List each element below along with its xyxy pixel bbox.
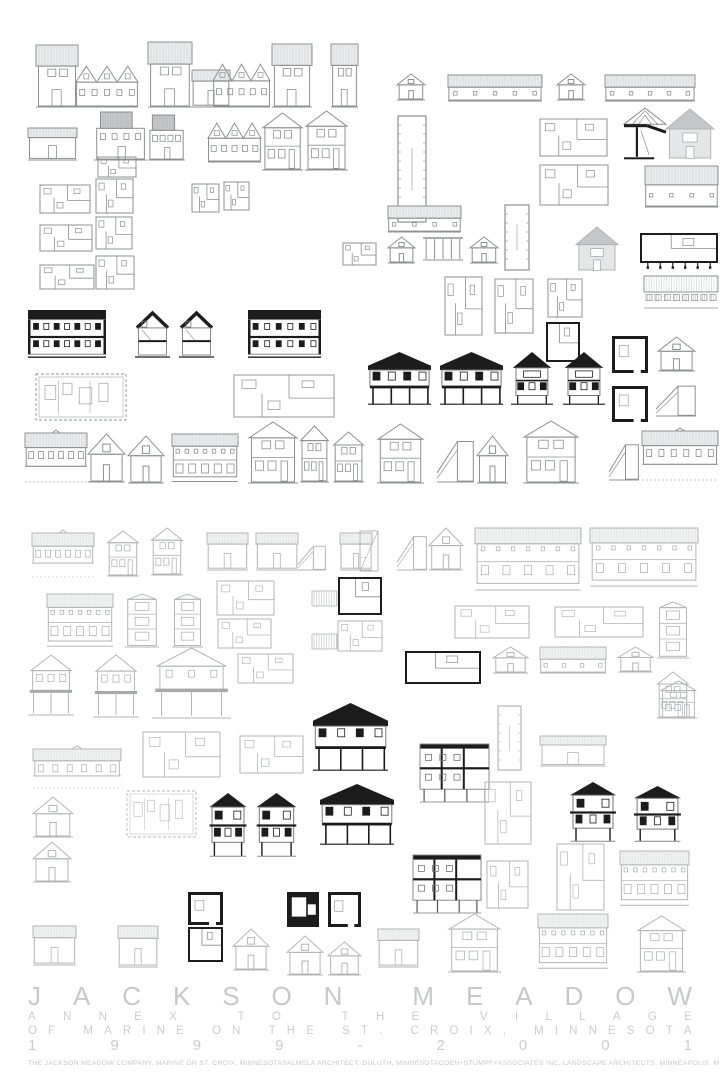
- elevation-drawing: [152, 648, 231, 718]
- elevation-drawing: [642, 428, 718, 480]
- elevation-drawing: [448, 914, 501, 972]
- floor-plan-drawing: [40, 225, 92, 251]
- elevation-drawing: [33, 746, 121, 788]
- section-drawing: [313, 703, 388, 771]
- elevation-drawing: [523, 421, 579, 483]
- floor-plan-drawing: [644, 276, 718, 308]
- elevation-drawing: [33, 926, 76, 965]
- floor-plan-drawing: [445, 277, 482, 335]
- elevation-drawing: [448, 74, 542, 101]
- elevation-drawing: [618, 647, 653, 672]
- poster-subtitle-line1: ANNEXTOTHEVILLAGE: [28, 1011, 692, 1023]
- jackson-meadow-poster: JACKSONMEADOW ANNEXTOTHEVILLAGE OFMARINE…: [0, 0, 720, 1080]
- section-drawing: [440, 352, 503, 405]
- elevation-drawing: [540, 736, 606, 766]
- floor-plan-drawing: [96, 217, 132, 249]
- floor-plan-drawing: [192, 184, 219, 212]
- elevation-drawing: [248, 422, 298, 483]
- floor-plan-drawing: [188, 927, 223, 962]
- elevation-drawing: [605, 74, 695, 101]
- elevation-drawing: [475, 526, 581, 592]
- elevation-drawing: [272, 44, 312, 107]
- elevation-drawing: [298, 543, 326, 570]
- floor-plan-drawing: [240, 736, 303, 773]
- elevation-drawing: [423, 236, 463, 261]
- elevation-drawing: [397, 532, 427, 570]
- elevation-drawing: [107, 531, 139, 576]
- floor-plan-drawing: [498, 706, 521, 770]
- elevation-drawing: [477, 436, 508, 483]
- elevation-drawing: [148, 115, 185, 160]
- floor-plan-drawing: [188, 892, 223, 925]
- elevation-drawing: [538, 912, 608, 970]
- section-drawing: [320, 784, 394, 845]
- elevation-drawing: [256, 533, 298, 570]
- section-drawing: [511, 352, 553, 405]
- elevation-drawing: [557, 74, 585, 100]
- elevation-drawing: [28, 128, 77, 160]
- section-drawing: [568, 782, 618, 842]
- elevation-drawing: [666, 109, 714, 159]
- elevation-drawing: [151, 528, 183, 575]
- section-drawing: [248, 310, 321, 358]
- floor-plan-drawing: [40, 265, 94, 289]
- elevation-drawing: [493, 647, 528, 673]
- elevation-drawing: [590, 526, 698, 588]
- poster-years: 1999-2001: [28, 1038, 692, 1054]
- floor-plan-drawing: [328, 892, 361, 927]
- elevation-drawing: [172, 594, 203, 647]
- floor-plan-drawing: [217, 581, 274, 615]
- elevation-drawing: [287, 936, 323, 975]
- floor-plan-drawing: [287, 892, 319, 927]
- section-drawing: [28, 310, 106, 358]
- floor-plan-drawing: [612, 386, 648, 422]
- section-drawing: [368, 352, 431, 405]
- floor-plan-drawing: [343, 243, 376, 265]
- elevation-drawing: [377, 424, 424, 483]
- elevation-drawing: [94, 112, 147, 160]
- hatch-mark: [312, 591, 337, 606]
- elevation-drawing: [620, 849, 689, 907]
- elevation-drawing: [36, 45, 78, 107]
- floor-plan-drawing: [487, 861, 528, 908]
- floor-plan-drawing: [505, 205, 529, 270]
- floor-plan-drawing: [218, 619, 271, 648]
- floor-plan-drawing: [640, 233, 718, 269]
- floor-plan-drawing: [455, 606, 529, 638]
- section-drawing: [255, 793, 298, 857]
- elevation-drawing: [609, 440, 639, 480]
- credit-landscape: COEN+STUMPF+ASSOCIATES INC, LANDSCAPE AR…: [439, 1060, 720, 1068]
- elevation-drawing: [470, 237, 498, 263]
- elevation-drawing: [360, 531, 378, 571]
- elevation-drawing: [429, 528, 463, 570]
- elevation-drawing: [128, 436, 164, 483]
- hatch-mark: [312, 634, 337, 649]
- section-drawing: [563, 352, 605, 405]
- floor-plan-drawing: [405, 651, 481, 684]
- elevation-drawing: [213, 62, 270, 107]
- section-drawing: [208, 793, 248, 857]
- elevation-drawing: [32, 530, 94, 577]
- section-drawing: [632, 786, 683, 842]
- floor-plan-drawing: [555, 607, 643, 637]
- floor-plan-drawing: [548, 279, 582, 317]
- floor-plan-drawing: [96, 179, 133, 213]
- poster-title: JACKSONMEADOW: [28, 983, 692, 1009]
- section-drawing: [413, 855, 481, 913]
- elevation-drawing: [28, 655, 74, 715]
- elevation-drawing: [637, 916, 686, 972]
- credit-company: THE JACKSON MEADOW COMPANY, MARINE ON ST…: [28, 1060, 282, 1068]
- elevation-drawing: [388, 205, 461, 232]
- credit-architect: SALMELA ARCHITECT, DULUTH, MINNESOTA: [282, 1060, 438, 1068]
- elevation-drawing: [125, 594, 159, 647]
- elevation-drawing: [207, 533, 248, 570]
- elevation-drawing: [658, 337, 695, 371]
- elevation-drawing: [660, 681, 697, 718]
- section-drawing: [179, 311, 214, 358]
- elevation-drawing: [172, 432, 238, 483]
- elevation-drawing: [378, 929, 419, 967]
- floor-plan-drawing: [557, 844, 604, 910]
- elevation-drawing: [576, 227, 618, 271]
- floor-plan-drawing: [143, 732, 220, 777]
- elevation-drawing: [328, 942, 361, 975]
- floor-plan-drawing: [540, 165, 608, 205]
- elevation-drawing: [437, 436, 474, 482]
- floor-plan-drawing: [495, 279, 533, 333]
- floor-plan-drawing: [238, 654, 293, 683]
- floor-plan-drawing: [127, 791, 196, 837]
- elevation-drawing: [305, 111, 348, 170]
- elevation-drawing: [76, 64, 138, 107]
- floor-plan-drawing: [98, 157, 136, 177]
- floor-plan-drawing: [612, 336, 648, 373]
- floor-plan-drawing: [96, 256, 134, 289]
- floor-plan-drawing: [36, 374, 126, 420]
- elevation-drawing: [397, 74, 425, 100]
- section-drawing: [624, 106, 666, 163]
- elevation-drawing: [33, 842, 71, 882]
- poster-credits: THE JACKSON MEADOW COMPANY, MARINE ON ST…: [28, 1060, 692, 1068]
- elevation-drawing: [33, 797, 73, 837]
- poster-subtitle-line2: OFMARINEONTHEST.CROIX,MINNESOTA: [28, 1025, 692, 1037]
- floor-plan-drawing: [338, 577, 382, 615]
- elevation-drawing: [93, 655, 139, 717]
- floor-plan-drawing: [338, 621, 382, 651]
- elevation-drawing: [262, 113, 303, 170]
- elevation-drawing: [657, 602, 689, 658]
- elevation-drawing: [300, 426, 329, 482]
- elevation-drawing: [645, 165, 718, 207]
- elevation-drawing: [148, 42, 192, 107]
- floor-plan-drawing: [234, 375, 334, 417]
- elevation-drawing: [540, 646, 606, 673]
- elevation-drawing: [47, 592, 113, 648]
- elevation-drawing: [233, 929, 269, 970]
- elevation-drawing: [333, 432, 364, 482]
- floor-plan-drawing: [40, 185, 90, 213]
- elevation-drawing: [656, 382, 696, 416]
- elevation-drawing: [25, 430, 87, 482]
- elevation-drawing: [208, 121, 261, 162]
- floor-plan-drawing: [540, 119, 607, 156]
- elevation-drawing: [331, 44, 358, 107]
- floor-plan-drawing: [224, 182, 249, 210]
- elevation-drawing: [388, 237, 415, 263]
- elevation-drawing: [88, 434, 125, 482]
- section-drawing: [135, 311, 170, 358]
- elevation-drawing: [118, 926, 158, 967]
- section-drawing: [420, 744, 489, 802]
- floor-plan-drawing: [485, 782, 531, 844]
